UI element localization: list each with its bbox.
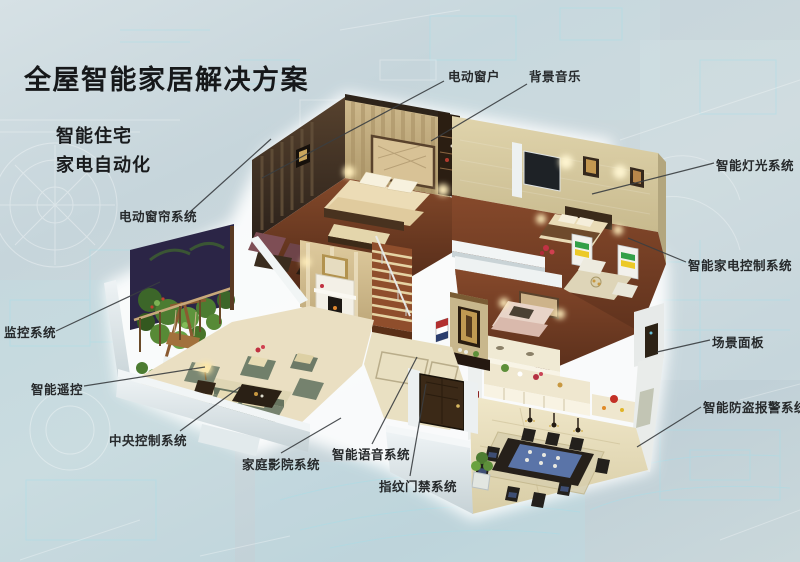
page-title: 全屋智能家居解决方案 [24,58,309,97]
callout-home-theater: 家庭影院系统 [242,454,320,473]
vase [518,372,523,377]
snack [593,280,596,283]
picture-art [586,159,596,174]
fruit-bowl [558,383,563,388]
bedside-lamp-glow [437,184,449,196]
callout-central-control: 中央控制系统 [109,430,187,449]
smart-home-poster: 全屋智能家居解决方案 智能住宅 家电自动化 电动窗户 背景音乐 智能灯光系统 智… [0,0,800,562]
wall-lamp-glow [301,257,311,267]
rose-bouquet [539,372,543,376]
subtitle-smart-residence: 智能住宅 [56,122,132,148]
painting-figure [466,315,472,338]
subtitle-appliance-automation: 家电自动化 [56,151,151,177]
red-pot [610,395,618,403]
callout-smart-lighting: 智能灯光系统 [716,155,794,174]
bedside-lamp-glow [499,298,509,308]
tv-partition [512,142,522,198]
callout-background-music: 背景音乐 [529,66,581,85]
console-flowers [458,348,462,352]
callout-appliance-control: 智能家电控制系统 [688,255,792,274]
snack-table [591,277,601,287]
tv-screen [524,151,560,191]
rose-bouquet [533,374,539,380]
ceiling-lamp-glow [559,155,573,169]
bedside-lamp-glow [343,166,355,178]
console-plant [473,351,479,357]
console-flowers [464,350,468,354]
sink [526,352,534,356]
mantel-flowers [320,284,324,288]
table-tray [254,392,258,396]
callout-fingerprint-access: 指纹门禁系统 [379,476,457,495]
callout-voice-system: 智能语音系统 [332,444,410,463]
bedside-lamp-glow [536,214,546,224]
fruit [602,406,606,410]
callout-scene-panel: 场景面板 [712,332,764,351]
flower-vase [256,348,261,353]
callout-smart-remote: 智能遥控 [31,379,83,398]
panel-screen [650,332,653,335]
callout-electric-curtain: 电动窗帘系统 [119,206,197,225]
door-side-wall [464,380,478,434]
callout-monitoring: 监控系统 [4,322,56,341]
door-side-wall [408,368,420,428]
shelf-decor [445,158,449,162]
ceiling-lamp-glow [613,165,627,179]
bedside-lamp-glow [555,309,565,319]
counter-plant [501,364,509,372]
door-handle [456,404,460,408]
flower-vase [261,345,265,349]
callout-electric-window: 电动窗户 [448,66,500,85]
bedside-lamp-glow [613,225,623,235]
scene-panel [645,323,658,358]
fire-glow [333,306,337,310]
callout-burglar-alarm: 智能防盗报警系统 [703,397,800,416]
fruit [620,408,624,412]
snack [598,283,601,286]
table-tray [261,395,264,398]
sink [496,346,504,350]
